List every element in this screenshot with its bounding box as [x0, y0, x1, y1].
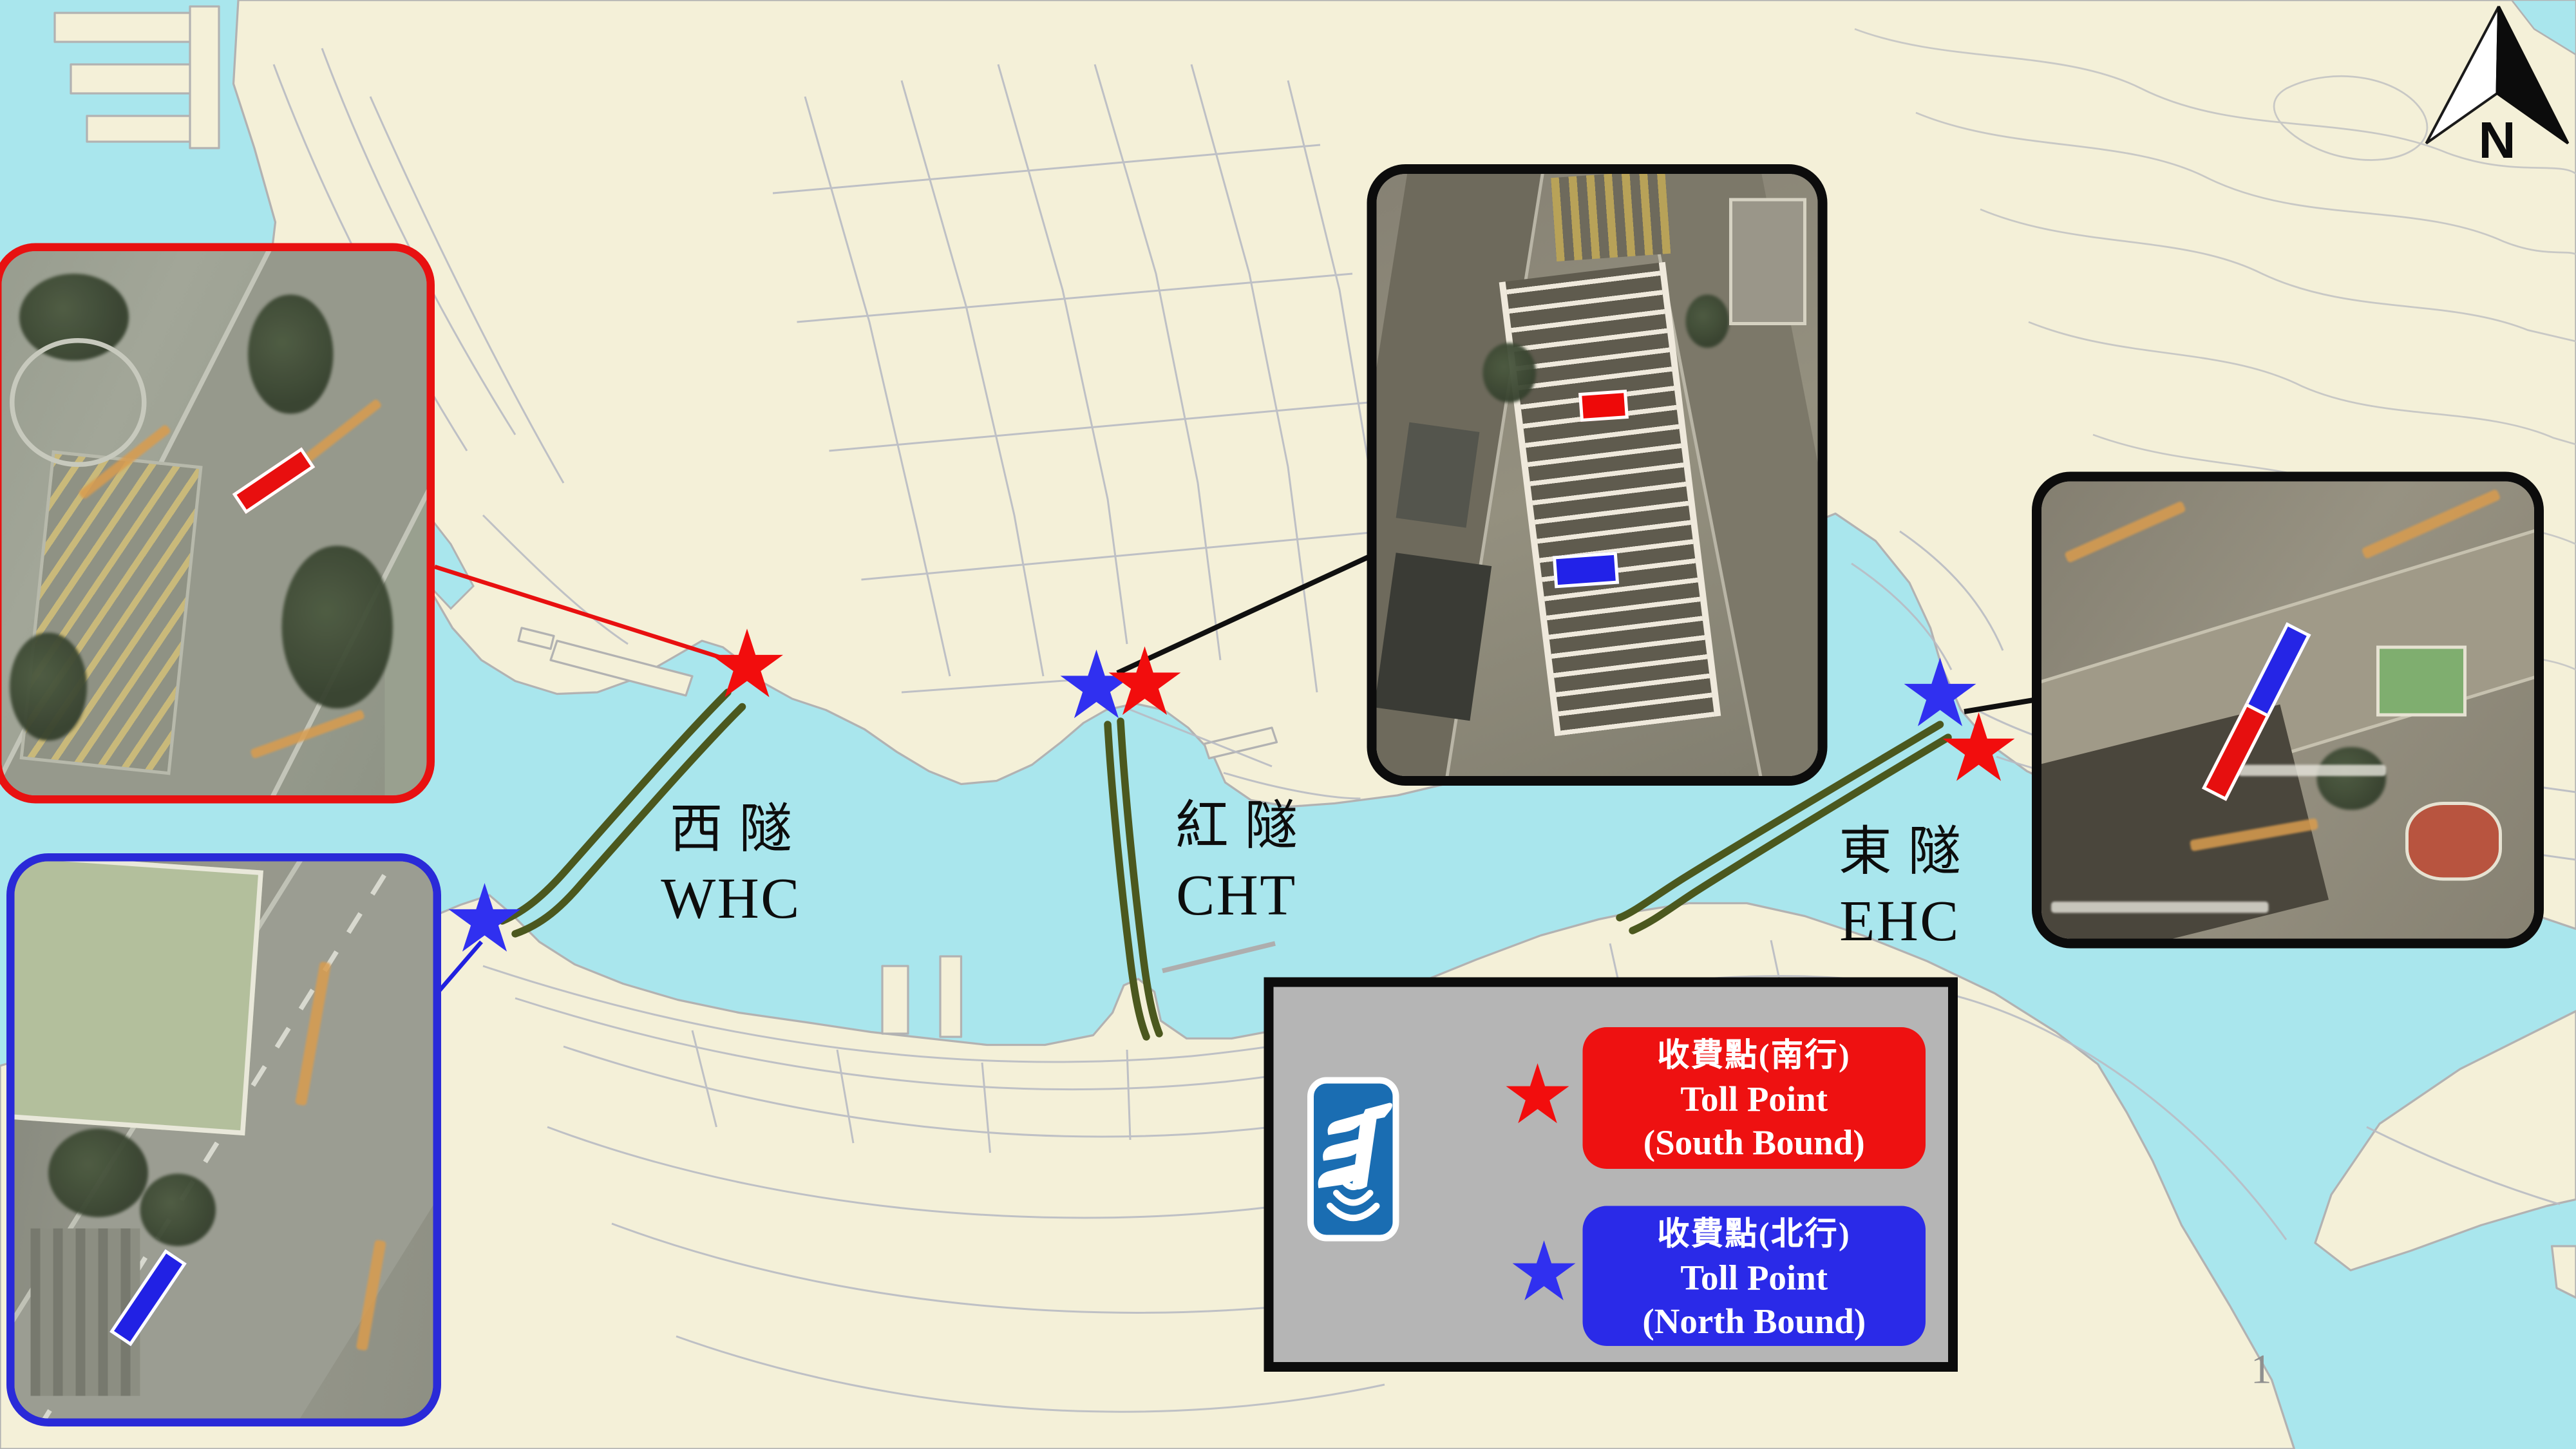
cht-southbound-star	[1104, 646, 1185, 723]
legend-northbound-star	[1509, 1240, 1580, 1307]
ehc-english-label: EHC	[1763, 889, 2037, 954]
building-block	[1729, 198, 1806, 325]
cht-english-label: CHT	[1100, 863, 1374, 928]
north-arrow-icon: N	[2407, 0, 2576, 177]
southbound-toll-point-bar	[1578, 389, 1629, 421]
green-roof-building	[6, 853, 263, 1136]
southbound-zh-text: 收費點(南行)	[1583, 1036, 1926, 1077]
inset-whc-southbound-plaza	[0, 243, 435, 804]
label-ehc: 東隧 EHC	[1763, 824, 2037, 954]
photo-place-label	[2051, 902, 2268, 914]
inset-ehc-toll-plaza	[2032, 472, 2544, 949]
cht-chinese-label: 紅隧	[1100, 799, 1374, 858]
legend-northbound-box: 收費點(北行) Toll Point (North Bound)	[1583, 1206, 1926, 1347]
northbound-en-text2: (North Bound)	[1583, 1300, 1926, 1343]
label-whc: 西隧 WHC	[594, 802, 868, 931]
northbound-zh-text: 收費點(北行)	[1583, 1214, 1926, 1256]
trees	[140, 1173, 216, 1245]
legend-southbound-box: 收費點(南行) Toll Point (South Bound)	[1583, 1027, 1926, 1169]
label-cht: 紅隧 CHT	[1100, 799, 1374, 928]
harbour-tunnels-map: 西隧 WHC 紅隧 CHT 東隧 EHC	[0, 0, 2576, 1449]
whc-chinese-label: 西隧	[594, 802, 868, 861]
queuing-traffic	[1550, 170, 1671, 262]
stadium	[2406, 801, 2501, 881]
northbound-toll-point-bar	[1552, 551, 1618, 588]
trees	[282, 545, 393, 708]
whc-southbound-star	[707, 628, 788, 705]
legend-southbound-star	[1502, 1063, 1573, 1130]
northbound-en-text1: Toll Point	[1583, 1256, 1926, 1300]
building-block	[1397, 422, 1480, 527]
whc-northbound-star	[444, 882, 525, 960]
ehc-southbound-star	[1938, 712, 2019, 789]
trees	[10, 632, 87, 741]
ehc-chinese-label: 東隧	[1763, 824, 2037, 884]
inset-whc-northbound-plaza	[6, 853, 441, 1426]
southbound-en-text1: Toll Point	[1583, 1077, 1926, 1121]
whc-english-label: WHC	[594, 866, 868, 931]
southbound-en-text2: (South Bound)	[1583, 1121, 1926, 1164]
photo-place-label	[2239, 765, 2386, 777]
page-number: 1	[2251, 1346, 2272, 1394]
screenshot-viewport: 西隧 WHC 紅隧 CHT 東隧 EHC	[0, 0, 2576, 1449]
trees	[248, 295, 333, 415]
inset-cht-toll-plaza	[1367, 164, 1828, 786]
north-label: N	[2479, 111, 2516, 169]
legend: 收費點(南行) Toll Point (South Bound) 收費點(北行)…	[1264, 978, 1958, 1372]
hk-etoll-logo-icon	[1307, 1077, 1399, 1242]
sports-court	[2376, 646, 2467, 716]
trees	[1482, 343, 1535, 402]
